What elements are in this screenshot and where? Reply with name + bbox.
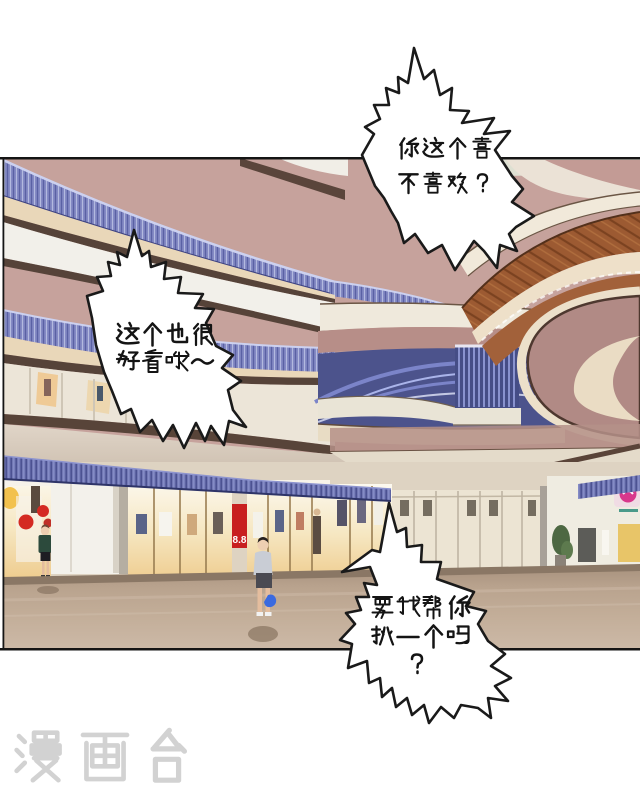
svg-text:8.8: 8.8: [233, 535, 247, 546]
